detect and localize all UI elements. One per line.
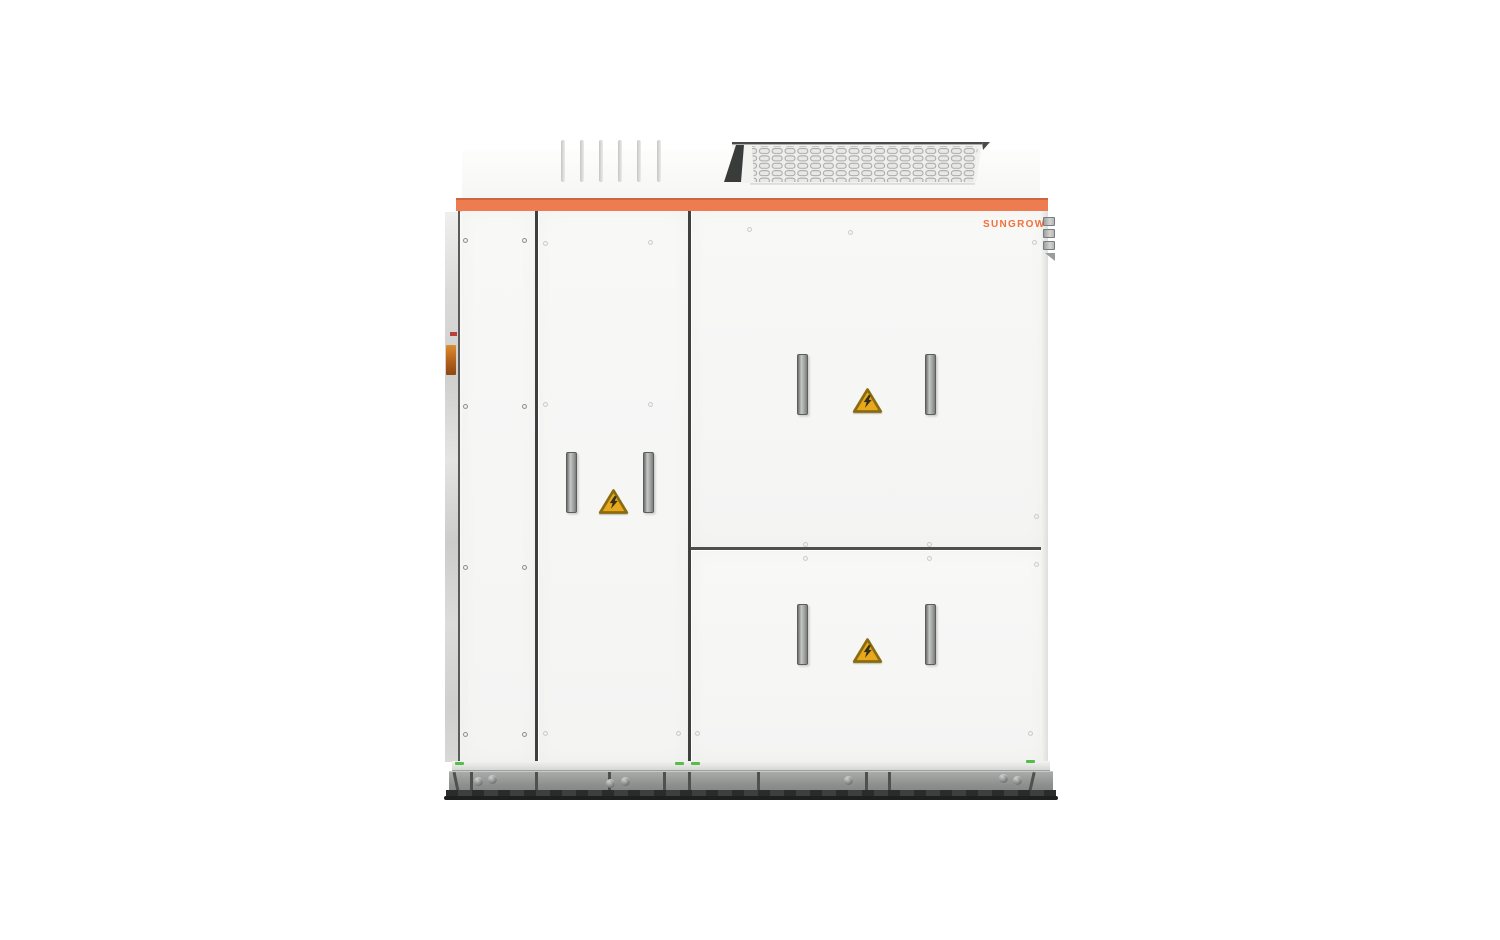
side-panel-left <box>445 212 458 762</box>
screw <box>1028 731 1033 736</box>
roof-vent-slat <box>561 140 565 182</box>
screw <box>522 404 527 409</box>
high-voltage-warning-icon <box>598 488 629 516</box>
screw <box>676 731 681 736</box>
screw <box>648 402 653 407</box>
screw <box>522 565 527 570</box>
panel-divider <box>688 211 691 762</box>
base-hole <box>606 779 615 788</box>
green-indicator <box>675 762 684 765</box>
screw <box>695 731 700 736</box>
left-service-panel <box>462 211 535 762</box>
door-handle <box>925 604 936 665</box>
middle-door <box>538 211 688 762</box>
door-handle <box>566 452 577 513</box>
product-image: SUNGROW <box>0 0 1500 940</box>
base-sill <box>452 761 1050 771</box>
screw <box>1034 514 1039 519</box>
screw <box>747 227 752 232</box>
door-handle <box>925 354 936 415</box>
screw <box>463 732 468 737</box>
roof-vent-slat <box>637 140 641 182</box>
copper-busbar <box>446 345 456 375</box>
screw <box>522 732 527 737</box>
screw <box>1032 240 1037 245</box>
ventilation-grille-icon <box>720 140 992 186</box>
roof-vent-slat <box>618 140 622 182</box>
screw <box>463 238 468 243</box>
base-hole <box>999 774 1008 783</box>
high-voltage-warning-icon <box>852 637 883 665</box>
screw <box>543 241 548 246</box>
brand-logo: SUNGROW <box>983 219 1045 230</box>
screw <box>648 240 653 245</box>
cabinet-front <box>458 211 1045 762</box>
panel-divider-horizontal <box>691 547 1043 550</box>
hinge-tab <box>1043 217 1055 226</box>
ground-shadow <box>444 796 1058 800</box>
hinge-tab <box>1043 229 1055 238</box>
door-handle <box>797 354 808 415</box>
roof-vent-slat <box>657 140 661 182</box>
screw <box>1034 562 1039 567</box>
door-handle <box>797 604 808 665</box>
hinge-tab <box>1043 241 1055 250</box>
green-indicator <box>455 762 464 765</box>
upper-right-door <box>691 211 1043 547</box>
screw <box>927 542 932 547</box>
roof-vent-slat <box>580 140 584 182</box>
screw <box>543 402 548 407</box>
accent-stripe <box>456 198 1048 211</box>
screw <box>803 542 808 547</box>
green-indicator <box>691 762 700 765</box>
screw <box>463 565 468 570</box>
side-panel-right <box>1041 211 1048 762</box>
screw <box>522 238 527 243</box>
base-hole <box>1013 776 1022 785</box>
roof-vent-slat <box>599 140 603 182</box>
screw <box>927 556 932 561</box>
base-hole <box>488 775 497 784</box>
green-indicator <box>1026 760 1035 763</box>
screw <box>848 230 853 235</box>
base-hole <box>621 777 630 786</box>
panel-divider <box>535 211 538 762</box>
base-hole <box>844 776 853 785</box>
door-handle <box>643 452 654 513</box>
screw <box>463 404 468 409</box>
base-hole <box>474 777 483 786</box>
hinge-foot <box>1045 253 1055 261</box>
hinge-bracket <box>1043 217 1055 265</box>
screw <box>803 556 808 561</box>
red-cable-mark <box>450 332 457 336</box>
screw <box>543 731 548 736</box>
high-voltage-warning-icon <box>852 387 883 415</box>
